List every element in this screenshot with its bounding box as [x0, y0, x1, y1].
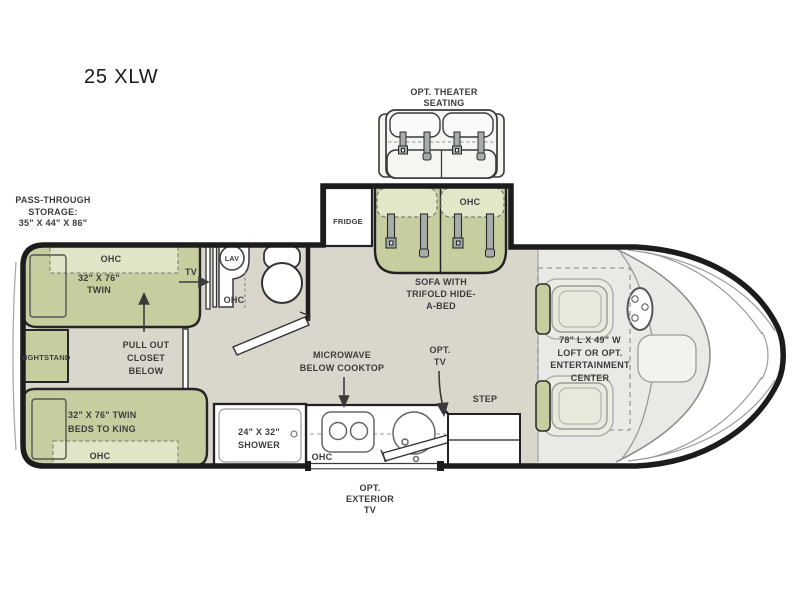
label-lav: LAV — [225, 254, 239, 266]
label-twin-bottom: 32" X 76" TWIN BEDS TO KING — [68, 408, 137, 436]
label-tv: TV — [185, 266, 197, 278]
sofa-hide-a-bed — [375, 187, 506, 273]
label-loft: 78" L X 49" W LOFT OR OPT. ENTERTAINMENT… — [550, 334, 630, 384]
theater-seating-option — [379, 110, 504, 178]
label-pass-through-storage: PASS-THROUGH STORAGE: 35" X 44" X 86" — [15, 195, 90, 230]
label-pull-out-closet: PULL OUT CLOSET BELOW — [123, 339, 170, 378]
label-sofa: SOFA WITH TRIFOLD HIDE- A-BED — [406, 276, 475, 312]
entry-step — [448, 414, 520, 466]
label-ohc-bed-top: OHC — [101, 253, 122, 265]
label-fridge: FRIDGE — [333, 216, 363, 228]
label-step: STEP — [473, 393, 498, 405]
label-shower: 24" X 32" SHOWER — [238, 426, 280, 452]
label-nightstand: NIGHTSTAND — [19, 352, 70, 364]
cab-seat-driver — [536, 279, 613, 339]
rear-cap-line — [13, 262, 16, 450]
label-ohc-bed-bottom: OHC — [90, 450, 111, 462]
label-theater-seating: OPT. THEATER SEATING — [410, 87, 477, 109]
label-twin-top: 32" X 76" TWIN — [78, 272, 120, 296]
label-exterior-tv: OPT. EXTERIOR TV — [346, 483, 394, 516]
label-microwave: MICROWAVE BELOW COOKTOP — [300, 349, 385, 374]
privacy-wall — [183, 329, 188, 389]
toilet-bowl — [262, 263, 302, 303]
floorplan-svg — [0, 0, 800, 600]
cooktop — [322, 412, 374, 452]
label-ohc-bath: OHC — [224, 294, 245, 306]
floorplan-canvas: 25 XLW OPT. THEATER SEATING PASS-THROUGH… — [0, 0, 800, 600]
steering-wheel — [628, 288, 653, 330]
cab-seat-passenger — [536, 376, 613, 436]
label-ohc-sofa: OHC — [460, 196, 481, 208]
label-opt-tv: OPT. TV — [429, 344, 450, 368]
page-title: 25 XLW — [84, 66, 158, 88]
bed-bottom-ohc — [53, 441, 178, 466]
label-ohc-kitchen: OHC — [312, 451, 333, 463]
